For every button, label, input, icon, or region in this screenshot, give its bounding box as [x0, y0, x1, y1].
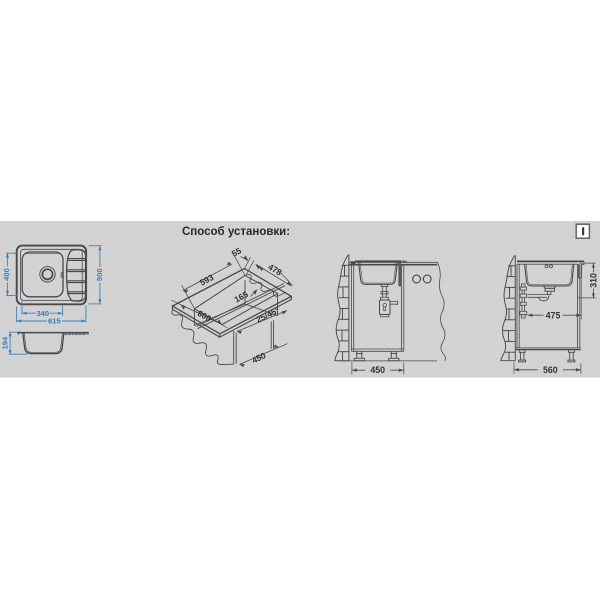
svg-text:450: 450 [370, 365, 385, 375]
svg-text:400: 400 [2, 268, 11, 281]
svg-text:560: 560 [543, 365, 558, 375]
svg-text:500: 500 [95, 268, 104, 281]
svg-text:194: 194 [1, 336, 10, 349]
svg-text:615: 615 [48, 317, 61, 326]
svg-text:475: 475 [546, 310, 561, 320]
svg-text:Способ установки:: Способ установки: [182, 226, 290, 238]
svg-text:310: 310 [588, 273, 598, 288]
